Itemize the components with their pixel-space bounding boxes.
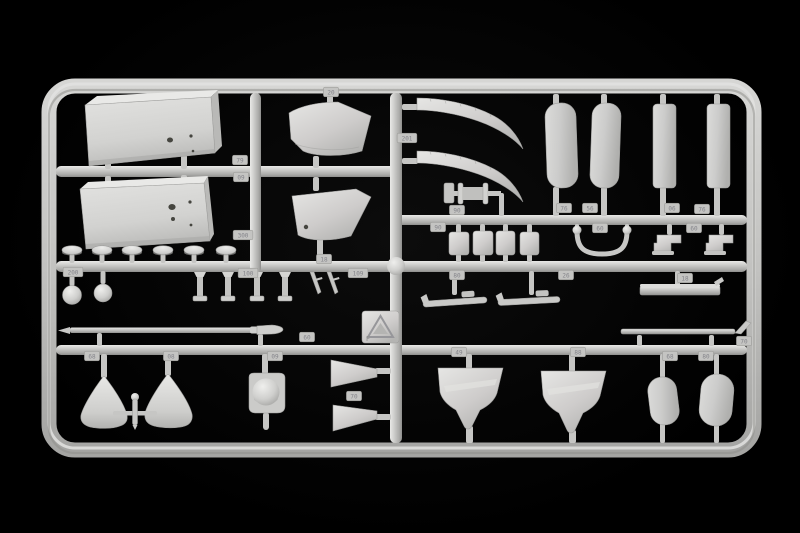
part-number-tag: 26 (558, 270, 573, 280)
skid-strip (621, 321, 751, 334)
part-number-tag: 68 (84, 351, 99, 361)
svg-text:201: 201 (402, 135, 413, 142)
panel-hole (304, 225, 308, 229)
svg-text:90: 90 (453, 207, 461, 214)
part-number-tag: 70 (346, 391, 361, 401)
runner-rack-center (496, 289, 561, 305)
part-number-tag: 76 (556, 203, 571, 213)
svg-text:60: 60 (596, 225, 604, 232)
svg-text:76: 76 (560, 205, 568, 212)
box-hole (168, 204, 175, 210)
angled-pin-pair (310, 272, 340, 294)
svg-text:200: 200 (68, 269, 79, 276)
svg-text:68: 68 (88, 353, 96, 360)
svg-text:90: 90 (434, 224, 442, 231)
svg-text:56: 56 (586, 205, 594, 212)
part-number-tag: 09 (233, 172, 248, 182)
part-number-tag: 18 (677, 273, 692, 283)
part-number-tag: 300 (233, 230, 253, 240)
svg-text:06: 06 (668, 205, 676, 212)
svg-text:60: 60 (690, 225, 698, 232)
part-number-tag: 200 (63, 267, 83, 277)
part-number-tag: 56 (582, 203, 597, 213)
mold-stamp-plate: F (362, 311, 399, 343)
seat-left (438, 368, 503, 429)
stepped-bracket-left (652, 235, 681, 255)
part-number-tag: 80 (698, 351, 713, 361)
sphere-pair (63, 284, 113, 305)
stepped-bracket-right (704, 235, 733, 255)
equipment-box-lower (80, 176, 214, 249)
svg-text:60: 60 (303, 334, 311, 341)
curved-blade-upper (417, 98, 523, 149)
part-number-tag: 18 (316, 254, 331, 264)
svg-text:18: 18 (681, 275, 689, 282)
sprue-photo: F 20079093001001092018680809607020190907… (0, 0, 800, 533)
svg-text:26: 26 (562, 272, 570, 279)
photo-background: F 20079093001001092018680809607020190907… (0, 0, 800, 533)
svg-text:109: 109 (353, 270, 364, 277)
part-number-tag: 09 (267, 351, 282, 361)
svg-text:80: 80 (702, 353, 710, 360)
part-number-tag: 80 (449, 270, 464, 280)
svg-text:70: 70 (740, 338, 748, 345)
cowl-panel-upper (289, 102, 371, 156)
flat-strip-right (707, 104, 730, 188)
stamp-letter: F (366, 335, 370, 343)
part-number-tag: 68 (662, 351, 677, 361)
svg-text:09: 09 (237, 174, 245, 181)
rail-junction-knot (387, 257, 405, 275)
tapered-wedge-lower (333, 405, 377, 431)
svg-text:300: 300 (238, 232, 249, 239)
equipment-box-upper (85, 90, 222, 166)
box-hole (167, 138, 173, 143)
seat-right (541, 371, 606, 433)
part-number-tag: 60 (686, 223, 701, 233)
rounded-slab-right (590, 103, 622, 189)
cowl-panel-lower (292, 189, 371, 240)
conical-fairing-right (145, 374, 192, 427)
flanged-spool (444, 183, 501, 204)
flat-strip-left (653, 104, 676, 188)
part-number-tag: 90 (430, 222, 445, 232)
small-box-row (449, 231, 539, 255)
part-number-tag: 100 (238, 268, 258, 278)
pitot-rod (58, 325, 283, 335)
svg-text:80: 80 (453, 272, 461, 279)
part-number-tag: 20 (323, 87, 338, 97)
svg-text:88: 88 (574, 349, 582, 356)
svg-text:49: 49 (455, 349, 463, 356)
svg-text:100: 100 (243, 270, 254, 277)
tapered-wedge-upper (331, 360, 377, 387)
svg-text:08: 08 (167, 353, 175, 360)
part-number-tag: 06 (664, 203, 679, 213)
svg-text:70: 70 (350, 393, 358, 400)
rounded-pod-right (698, 373, 735, 428)
conical-fairing-left (81, 376, 127, 428)
svg-text:76: 76 (698, 206, 706, 213)
rounded-slab-left (545, 102, 579, 188)
svg-text:09: 09 (271, 353, 279, 360)
part-number-tag: 60 (299, 332, 314, 342)
rounded-pod-left (646, 375, 681, 426)
svg-text:68: 68 (666, 353, 674, 360)
part-number-tag: 76 (694, 204, 709, 214)
svg-text:79: 79 (236, 157, 244, 164)
part-number-tag: 70 (736, 336, 751, 346)
part-number-tag: 201 (397, 133, 417, 143)
svg-text:20: 20 (327, 89, 335, 96)
part-number-tag: 08 (163, 351, 178, 361)
dome-fairing (249, 373, 285, 413)
svg-text:18: 18 (320, 256, 328, 263)
part-number-tag: 49 (451, 347, 466, 357)
part-number-tag: 109 (348, 268, 368, 278)
part-number-tag: 60 (592, 223, 607, 233)
part-number-tag: 88 (570, 347, 585, 357)
part-number-tag: 90 (449, 205, 464, 215)
part-number-tag: 79 (232, 155, 247, 165)
